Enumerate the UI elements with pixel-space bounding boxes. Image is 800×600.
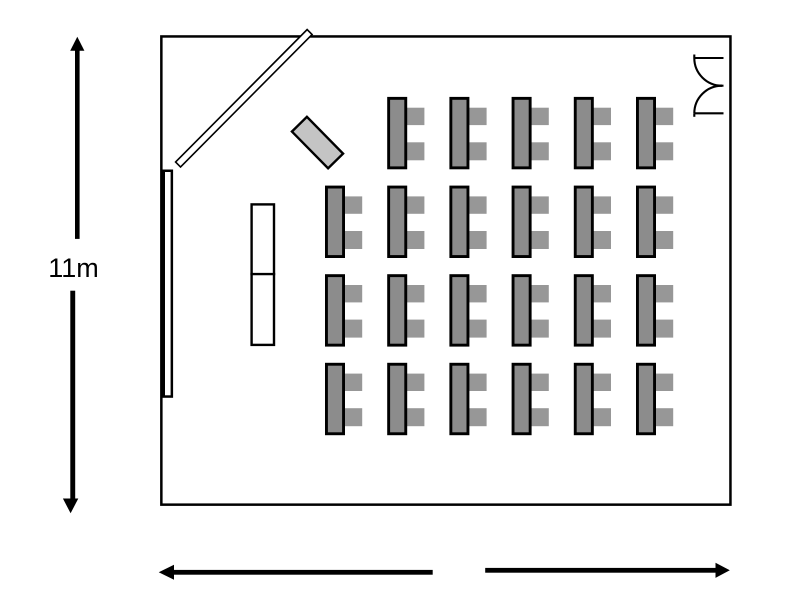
svg-text:11m: 11m xyxy=(48,253,99,283)
